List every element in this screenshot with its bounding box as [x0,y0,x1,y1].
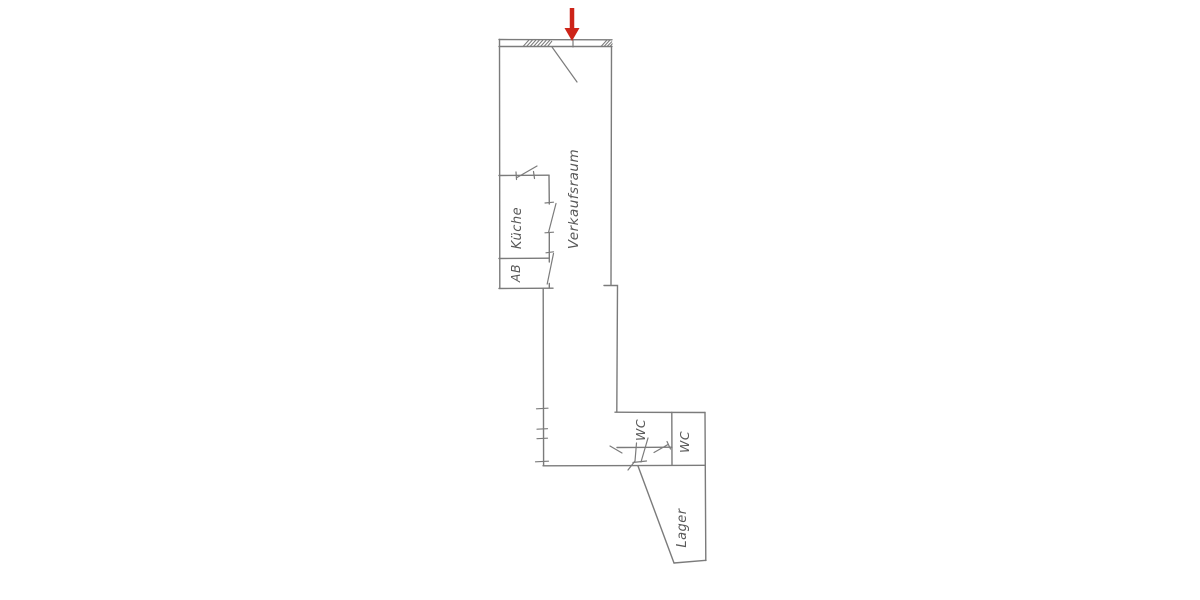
ab-door-tick [546,252,554,253]
room-labels: Verkaufsraum Küche AB WC WC Lager [508,149,692,548]
floor-plan-drawing: Verkaufsraum Küche AB WC WC Lager [0,0,1200,600]
room-label-lager: Lager [675,507,690,547]
room-label-wc-right: WC [677,431,692,453]
hatch-right-section [601,40,613,47]
room-label-verkaufsraum: Verkaufsraum [566,149,582,249]
room-label-wc-left: WC [633,419,648,441]
hatch-left-section [523,40,552,47]
right-wall-jog-and-corridor-right-wall [604,286,618,413]
room-label-ab: AB [508,264,523,283]
wc-left-door-ticks [633,443,647,463]
front-wall-hatching [523,40,613,47]
entrance-door-leaf [552,47,577,82]
verkaufsraum-right-wall [611,47,612,285]
bottom-wall [543,465,705,466]
floor-plan-page: Verkaufsraum Küche AB WC WC Lager [0,0,1200,600]
lager-bottom-wall [674,560,706,563]
corridor-wall-tick-1 [537,408,549,409]
wc-right-door-leaf [654,445,668,453]
kueche-right-door-leaf [549,204,557,233]
corridor-wall-tick-4 [536,461,549,462]
corridor-wall-tick-3 [537,438,548,439]
door-marks [516,40,671,471]
room-label-kueche: Küche [510,207,525,249]
walls [499,40,706,564]
window-ticks [536,408,549,462]
right-wall-lower [705,413,706,561]
lager-slanted-wall [638,466,674,563]
corridor-wall-tick-2 [537,429,548,430]
entrance-arrow-icon [565,8,580,41]
